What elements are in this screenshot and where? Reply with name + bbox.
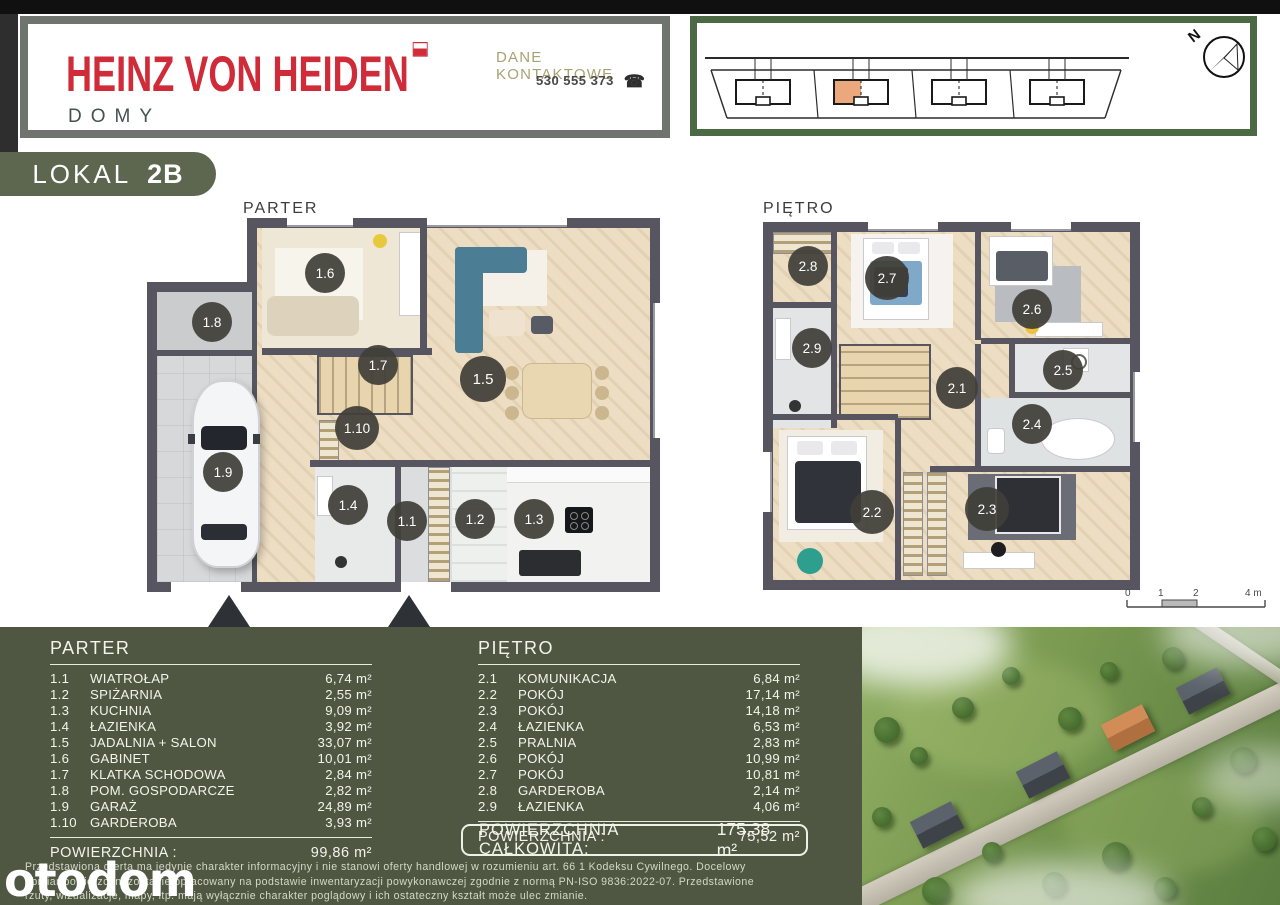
room-area: 9,09 m² <box>325 703 372 719</box>
table-row: 2.9ŁAZIENKA4,06 m² <box>478 799 800 815</box>
room-area: 6,74 m² <box>325 671 372 687</box>
room-name: WIATROŁAP <box>90 671 325 687</box>
room-area: 14,18 m² <box>746 703 800 719</box>
cooktop <box>565 507 593 533</box>
chair <box>595 406 609 420</box>
wall-divider <box>895 420 901 580</box>
scale-bar: 0 1 2 4 m <box>1125 585 1267 618</box>
coffee-table <box>489 310 525 336</box>
table-row: 1.6GABINET10,01 m² <box>50 751 372 767</box>
window <box>653 303 662 438</box>
dining-table <box>522 363 592 419</box>
room-badge: 1.8 <box>192 302 232 342</box>
wall-divider <box>831 308 837 428</box>
room-area: 33,07 m² <box>318 735 372 751</box>
room-badge: 1.9 <box>203 452 243 492</box>
office-lamp <box>373 234 387 248</box>
table-row: 2.7POKÓJ10,81 m² <box>478 767 800 783</box>
pietro-floorplan: 2.8 2.7 2.6 2.9 2.1 2.5 2.4 2.2 2.3 <box>763 222 1140 590</box>
siteplan-box: N <box>690 16 1257 136</box>
room-area: 2,82 m² <box>325 783 372 799</box>
wall-divider <box>930 466 1130 472</box>
room-badge: 1.10 <box>335 406 379 450</box>
room-badge: 1.1 <box>387 501 427 541</box>
table-title: PIĘTRO <box>478 638 800 659</box>
top-black-bar <box>0 0 1280 14</box>
wall-divider <box>975 232 981 340</box>
room-badge: 2.9 <box>792 328 832 368</box>
garage-door-opening <box>171 582 241 592</box>
chair <box>505 406 519 420</box>
room-id: 2.3 <box>478 703 518 719</box>
flag-icon <box>412 42 427 57</box>
staircase <box>839 344 931 420</box>
room-area: 24,89 m² <box>318 799 372 815</box>
wall-divider <box>310 460 660 467</box>
unit-badge-number: 2B <box>147 159 184 190</box>
room-area: 2,84 m² <box>325 767 372 783</box>
shower-drain <box>789 400 801 412</box>
room-badge: 2.8 <box>788 246 828 286</box>
room-id: 2.4 <box>478 719 518 735</box>
kitchen-counter <box>507 467 650 483</box>
otodom-watermark: otodom <box>4 853 196 905</box>
room-badge: 1.3 <box>514 499 554 539</box>
table-row: 2.3POKÓJ14,18 m² <box>478 703 800 719</box>
wall-divider <box>975 344 981 466</box>
brand-logo: HEINZ VON HEIDEN <box>66 42 427 103</box>
table-row: 1.5JADALNIA + SALON33,07 m² <box>50 735 372 751</box>
table-title: PARTER <box>50 638 372 659</box>
room-name: ŁAZIENKA <box>90 719 325 735</box>
room-id: 1.10 <box>50 815 90 831</box>
chair <box>505 386 519 400</box>
grand-total-value: 175,38 m² <box>717 819 790 861</box>
table-row: 2.5PRALNIA2,83 m² <box>478 735 800 751</box>
room-name: POM. GOSPODARCZE <box>90 783 325 799</box>
wall-divider <box>420 228 427 355</box>
compass-icon: N <box>1185 26 1244 77</box>
room-area: 10,99 m² <box>746 751 800 767</box>
pietro-area-table: PIĘTRO 2.1KOMUNIKACJA6,84 m² 2.2POKÓJ17,… <box>478 638 800 845</box>
table-row: 1.8POM. GOSPODARCZE2,82 m² <box>50 783 372 799</box>
window <box>1133 372 1142 442</box>
house <box>1176 667 1231 715</box>
room-name: GARAŻ <box>90 799 318 815</box>
window <box>1011 222 1071 231</box>
room-area: 2,55 m² <box>325 687 372 703</box>
room-area: 4,06 m² <box>753 799 800 815</box>
room-badge: 1.2 <box>455 499 495 539</box>
phone-number: 530 555 373☎ <box>536 72 645 92</box>
parter-floorplan: 1.6 1.8 1.7 1.5 1.10 1.9 1.4 1.1 1.2 1.3 <box>147 218 660 592</box>
pietro-plan-title: PIĘTRO <box>763 200 835 218</box>
room-id: 1.3 <box>50 703 90 719</box>
office-sofa <box>267 296 359 336</box>
room-id: 1.2 <box>50 687 90 703</box>
scale-label-1: 1 <box>1158 588 1164 599</box>
scale-label-2: 2 <box>1193 588 1199 599</box>
flyer-page: HEINZ VON HEIDEN DOMY DANE KONTAKTOWE 53… <box>0 0 1280 905</box>
room-name: POKÓJ <box>518 751 746 767</box>
entrance-arrow <box>388 595 430 627</box>
table-row: 1.10GARDEROBA3,93 m² <box>50 815 372 831</box>
table-row: 2.6POKÓJ10,99 m² <box>478 751 800 767</box>
room-name: PRALNIA <box>518 735 753 751</box>
side-table <box>531 316 553 334</box>
window <box>763 452 772 512</box>
room-badge: 1.7 <box>358 345 398 385</box>
chair <box>505 366 519 380</box>
room-area: 17,14 m² <box>746 687 800 703</box>
brand-name: HEINZ VON HEIDEN <box>66 46 409 102</box>
table-row: 2.8GARDEROBA2,14 m² <box>478 783 800 799</box>
room-id: 1.7 <box>50 767 90 783</box>
chair <box>595 366 609 380</box>
room-area: 2,14 m² <box>753 783 800 799</box>
kitchen-island <box>519 550 581 576</box>
bed <box>989 236 1053 286</box>
pouf <box>797 548 823 574</box>
room-area: 10,01 m² <box>318 751 372 767</box>
room-name: POKÓJ <box>518 767 746 783</box>
shower-drain <box>335 556 347 568</box>
wall-divider <box>831 232 837 308</box>
room-area: 10,81 m² <box>746 767 800 783</box>
phone-number-text: 530 555 373 <box>536 73 614 88</box>
room-id: 2.9 <box>478 799 518 815</box>
room-name: KLATKA SCHODOWA <box>90 767 325 783</box>
compass-n-label: N <box>1185 26 1204 46</box>
room-id: 2.7 <box>478 767 518 783</box>
room-area: 6,84 m² <box>753 671 800 687</box>
scale-label-0: 0 <box>1125 588 1131 599</box>
room-badge: 2.5 <box>1043 350 1083 390</box>
scale-label-4m: 4 m <box>1245 588 1262 599</box>
room-name: KOMUNIKACJA <box>518 671 753 687</box>
window <box>287 218 353 227</box>
bathroom-sink <box>775 318 791 360</box>
total-value: 99,86 m² <box>311 845 372 861</box>
room-area: 3,93 m² <box>325 815 372 831</box>
table-row: 1.2SPIŻARNIA2,55 m² <box>50 687 372 703</box>
room-badge: 2.7 <box>865 256 909 300</box>
wall-divider <box>773 414 898 420</box>
wardrobe-closet <box>927 472 947 576</box>
room-id: 1.9 <box>50 799 90 815</box>
table-row: 2.2POKÓJ17,14 m² <box>478 687 800 703</box>
room-name: KUCHNIA <box>90 703 325 719</box>
room-name: JADALNIA + SALON <box>90 735 318 751</box>
parter-area-table: PARTER 1.1WIATROŁAP6,74 m² 1.2SPIŻARNIA2… <box>50 638 372 861</box>
room-name: POKÓJ <box>518 687 746 703</box>
room-id: 1.8 <box>50 783 90 799</box>
wardrobe-closet <box>903 472 923 576</box>
unit-badge: LOKAL 2B <box>0 152 216 196</box>
room-badge: 1.4 <box>328 485 368 525</box>
table-row: 1.4ŁAZIENKA3,92 m² <box>50 719 372 735</box>
room-id: 2.8 <box>478 783 518 799</box>
window <box>427 218 567 227</box>
grand-total-box: POWIERZCHNIA CAŁKOWITA: 175,38 m² <box>461 824 808 856</box>
hall-closet <box>428 467 450 582</box>
table-row: 2.4ŁAZIENKA6,53 m² <box>478 719 800 735</box>
left-black-bar <box>0 14 18 154</box>
logo-box: HEINZ VON HEIDEN DOMY DANE KONTAKTOWE 53… <box>20 16 670 138</box>
sofa-side <box>455 247 483 353</box>
room-badge: 2.2 <box>850 490 894 534</box>
bathtub <box>1041 418 1115 460</box>
table-row: 1.7KLATKA SCHODOWA2,84 m² <box>50 767 372 783</box>
room-name: ŁAZIENKA <box>518 719 753 735</box>
chair <box>991 542 1006 557</box>
chair <box>595 386 609 400</box>
room-name: SPIŻARNIA <box>90 687 325 703</box>
room-badge: 2.4 <box>1012 404 1052 444</box>
entrance-arrow <box>208 595 250 627</box>
desk <box>1035 322 1103 337</box>
room-name: GARDEROBA <box>518 783 753 799</box>
room-badge: 2.6 <box>1012 289 1052 329</box>
room-id: 2.6 <box>478 751 518 767</box>
room-area: 6,53 m² <box>753 719 800 735</box>
room-name: GARDEROBA <box>90 815 325 831</box>
room-name: GABINET <box>90 751 318 767</box>
room-name: POKÓJ <box>518 703 746 719</box>
toilet <box>987 428 1005 454</box>
room-id: 1.6 <box>50 751 90 767</box>
room-badge: 1.5 <box>460 356 506 402</box>
brand-sub: DOMY <box>68 106 161 128</box>
table-row: 2.1KOMUNIKACJA6,84 m² <box>478 671 800 687</box>
room-id: 2.5 <box>478 735 518 751</box>
room-id: 2.1 <box>478 671 518 687</box>
table-row: 1.9GARAŻ24,89 m² <box>50 799 372 815</box>
room-id: 1.5 <box>50 735 90 751</box>
room-badge: 2.3 <box>965 487 1009 531</box>
table-row: 1.1WIATROŁAP6,74 m² <box>50 671 372 687</box>
room-badge: 2.1 <box>936 367 978 409</box>
room-area: 3,92 m² <box>325 719 372 735</box>
room-id: 2.2 <box>478 687 518 703</box>
room-area: 2,83 m² <box>753 735 800 751</box>
wall-divider <box>157 350 252 356</box>
aerial-photo <box>862 627 1280 905</box>
siteplan-drawing: N <box>697 23 1250 129</box>
room-id: 1.4 <box>50 719 90 735</box>
front-door-opening <box>401 582 451 592</box>
grand-total-label: POWIERZCHNIA CAŁKOWITA: <box>479 821 717 859</box>
wall-divider <box>262 348 432 355</box>
unit-badge-label: LOKAL <box>32 159 131 190</box>
room-badge: 1.6 <box>305 253 345 293</box>
room-name: ŁAZIENKA <box>518 799 753 815</box>
room-id: 1.1 <box>50 671 90 687</box>
parter-plan-title: PARTER <box>243 200 318 218</box>
phone-icon: ☎ <box>624 72 646 91</box>
table-row: 1.3KUCHNIA9,09 m² <box>50 703 372 719</box>
window <box>868 222 938 231</box>
